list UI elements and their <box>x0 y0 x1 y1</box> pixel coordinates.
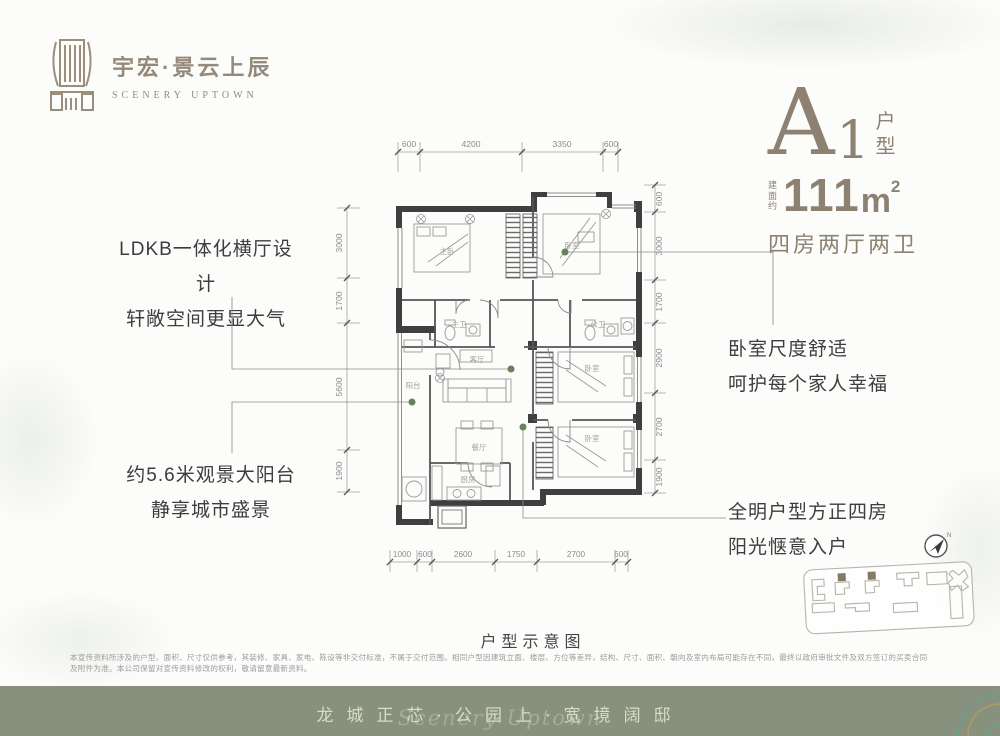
dim-label: 1900 <box>654 467 664 486</box>
dim-label: 1750 <box>507 550 526 559</box>
disclaimer-text: 本宣传资料所涉及的户型、面积、尺寸仅供参考，其装修、家具、家电、陈设等非交付标准… <box>70 652 930 674</box>
dim-label: 1700 <box>334 291 344 310</box>
dim-label: 3000 <box>654 236 664 255</box>
dimension-chain-top <box>395 142 621 172</box>
dim-label: 2900 <box>654 348 664 367</box>
dimension-chain-right <box>644 182 666 496</box>
dim-label: 4200 <box>461 139 480 149</box>
plan-caption-text: 户型示意图 <box>480 628 585 652</box>
dim-label: 600 <box>402 139 417 149</box>
room-label-bed-bottom: 卧室 <box>585 433 600 443</box>
dim-label: 600 <box>614 550 628 559</box>
dim-label: 3350 <box>552 139 571 149</box>
leader-lines <box>232 252 773 518</box>
room-label-master: 主卧 <box>440 246 455 256</box>
dimension-labels-right: 600 3000 1700 2900 2700 1900 <box>654 192 664 487</box>
floorplan-poster: 宇宏·景云上辰 SCENERY UPTOWN A 1 户型 建面约 111 m … <box>0 0 1000 736</box>
room-label-bath-master: 主卫 <box>452 319 467 329</box>
dim-label: 5600 <box>334 377 344 396</box>
room-label-bed-mid: 卧室 <box>585 363 600 373</box>
site-keyplan <box>803 561 974 634</box>
dim-label: 3000 <box>334 233 344 252</box>
footer-banner: Scenery Uptown 龙城正芯·公园上·宽境阔邸 <box>0 686 1000 736</box>
entry-porch <box>438 506 466 528</box>
dimension-labels-left: 3000 1700 5600 1900 <box>334 233 344 480</box>
dim-label: 600 <box>604 139 619 149</box>
room-label-balcony: 阳台 <box>406 380 421 390</box>
dimension-labels-bottom: 1000 600 2600 1750 2700 600 <box>393 550 628 559</box>
room-label-bath-public: 公卫 <box>591 320 606 329</box>
dim-label: 600 <box>418 550 432 559</box>
banner-corner-arcs <box>920 686 1000 736</box>
plan-caption: 户型示意图 <box>0 628 1000 652</box>
dim-label: 2600 <box>454 550 473 559</box>
compass-icon: N <box>925 533 951 557</box>
room-label-kitchen: 厨房 <box>461 474 476 484</box>
dim-label: 1000 <box>393 550 412 559</box>
dimension-labels-top: 600 4200 3350 600 <box>402 139 619 149</box>
dim-label: 2700 <box>567 550 586 559</box>
floor-plan: 600 4200 3350 600 1000 600 2600 1750 270… <box>0 0 1000 736</box>
room-label-dining: 餐厅 <box>472 443 487 452</box>
banner-slogan: 龙城正芯·公园上·宽境阔邸 <box>0 701 1000 726</box>
dim-label: 600 <box>654 192 664 207</box>
room-label-bed-top: 卧室 <box>565 240 580 250</box>
compass-north-label: N <box>947 533 951 539</box>
dim-label: 1900 <box>334 461 344 480</box>
dim-label: 2700 <box>654 417 664 436</box>
room-label-living: 客厅 <box>470 354 485 364</box>
dim-label: 1700 <box>654 292 664 311</box>
